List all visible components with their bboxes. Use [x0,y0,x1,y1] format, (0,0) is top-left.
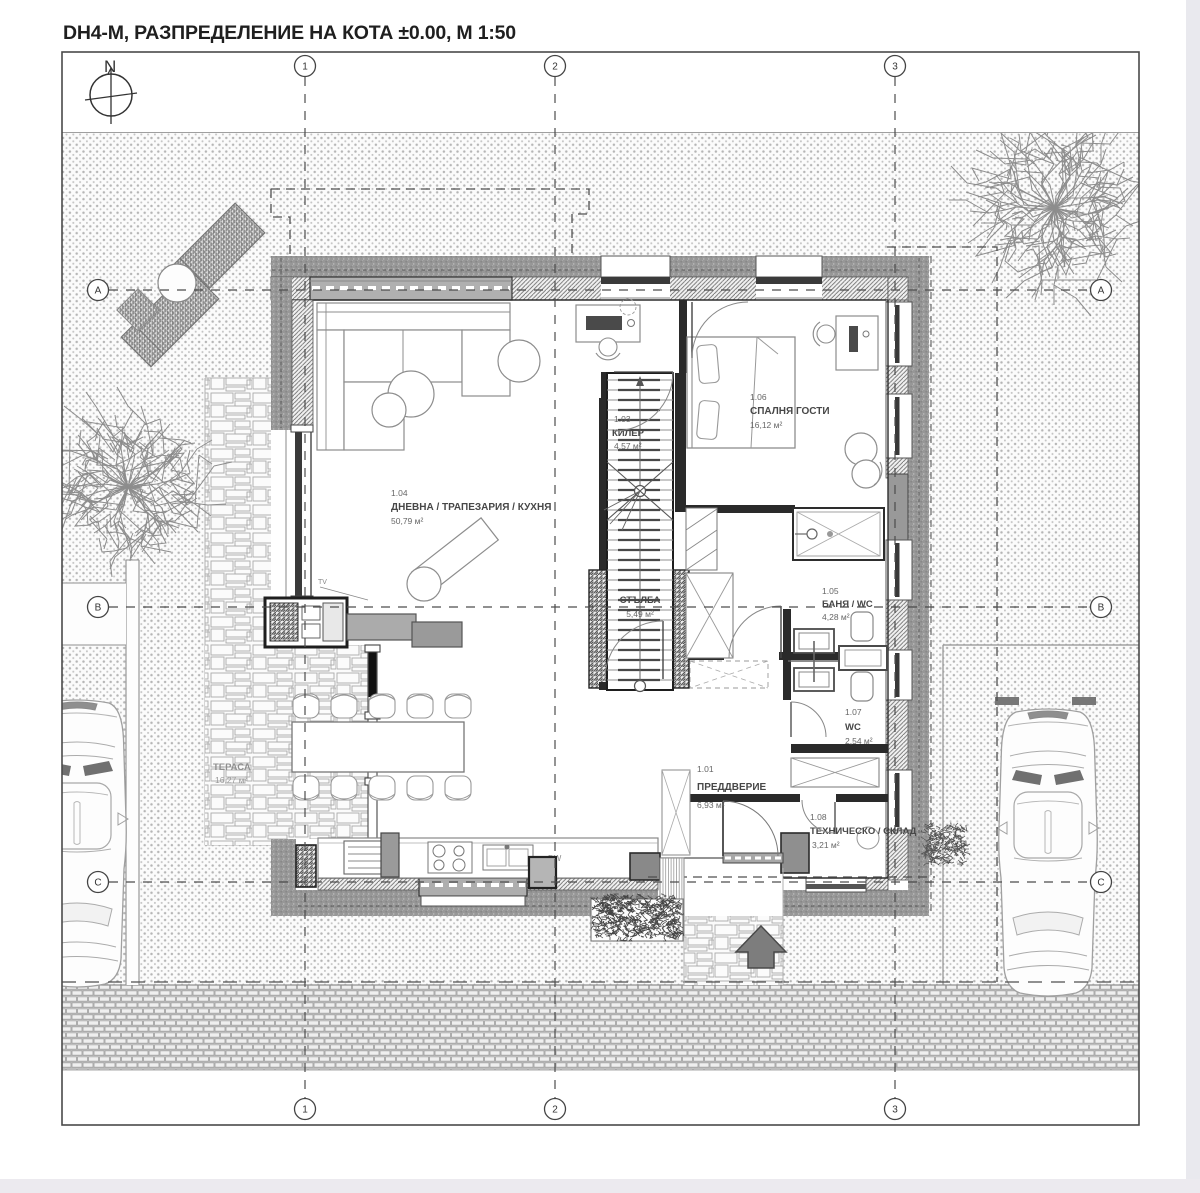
svg-text:B: B [95,603,102,614]
svg-text:ТЕРАСА: ТЕРАСА [213,762,251,773]
svg-text:3,21 м²: 3,21 м² [812,840,840,850]
svg-text:B: B [1098,603,1105,614]
svg-text:БАНЯ / WC: БАНЯ / WC [822,599,873,610]
svg-text:1.08: 1.08 [810,812,827,822]
svg-text:DH4-M, РАЗПРЕДЕЛЕНИЕ НА КОТА ±: DH4-M, РАЗПРЕДЕЛЕНИЕ НА КОТА ±0.00, М 1:… [63,22,516,44]
svg-text:N: N [104,57,116,76]
svg-text:A: A [95,286,102,297]
svg-text:1.06: 1.06 [750,392,767,402]
svg-text:5,49 м²: 5,49 м² [626,609,654,619]
svg-text:6,93 м²: 6,93 м² [697,800,725,810]
svg-text:СТЪЛБА: СТЪЛБА [620,595,661,606]
svg-text:A: A [1098,286,1105,297]
svg-text:1.07: 1.07 [845,707,862,717]
svg-text:2,54 м²: 2,54 м² [845,736,873,746]
svg-text:3: 3 [892,1105,898,1116]
svg-text:3: 3 [892,62,898,73]
svg-text:C: C [94,878,101,889]
svg-text:СПАЛНЯ ГОСТИ: СПАЛНЯ ГОСТИ [750,406,830,417]
svg-text:1.05: 1.05 [822,586,839,596]
svg-text:4,57 м²: 4,57 м² [614,441,642,451]
svg-text:C: C [1097,878,1104,889]
svg-text:1.03: 1.03 [614,414,631,424]
svg-text:2: 2 [552,1105,558,1116]
svg-text:2: 2 [552,62,558,73]
svg-text:ПРЕДДВЕРИЕ: ПРЕДДВЕРИЕ [697,782,767,793]
svg-text:WC: WC [845,722,861,733]
svg-text:TV: TV [318,579,327,586]
svg-text:1.01: 1.01 [697,764,714,774]
svg-text:16,12 м²: 16,12 м² [750,420,782,430]
svg-text:ДНЕВНА / ТРАПЕЗАРИЯ / КУХНЯ: ДНЕВНА / ТРАПЕЗАРИЯ / КУХНЯ [391,502,551,513]
svg-text:1: 1 [302,1105,308,1116]
svg-text:1: 1 [302,62,308,73]
svg-text:16,27 м²: 16,27 м² [215,775,247,785]
svg-text:50,79 м²: 50,79 м² [391,516,423,526]
svg-text:1.04: 1.04 [391,488,408,498]
svg-text:4,28 м²: 4,28 м² [822,612,850,622]
